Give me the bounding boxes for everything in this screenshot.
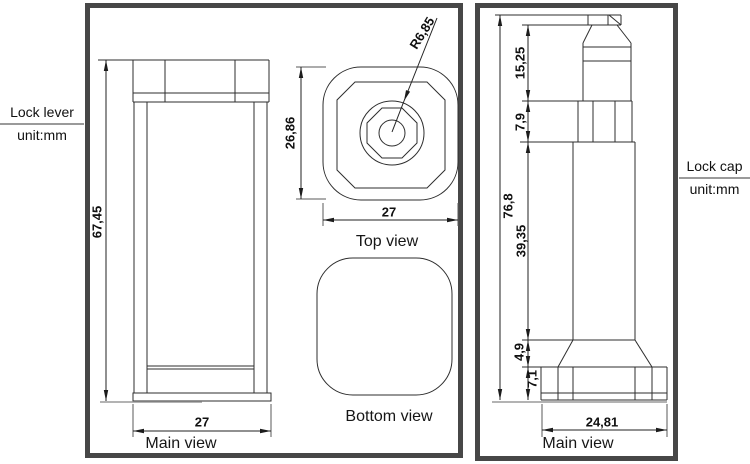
lever-bottom-view-title: Bottom view: [345, 408, 432, 426]
cap-base-dim-label: 7,1: [525, 370, 540, 388]
cap-main-view-title: Main view: [542, 435, 613, 453]
technical-drawing-page: Lock lever unit:mm Lock cap unit:mm: [0, 0, 750, 464]
lever-top-view-title: Top view: [356, 233, 418, 251]
cap-flare-dim-label: 4,9: [512, 343, 527, 361]
lever-main-view-title: Main view: [145, 435, 216, 453]
lever-width-dim-label: 27: [195, 415, 209, 430]
lock-lever-caption-unit: unit:mm: [0, 125, 84, 143]
lever-top-view-drawing: [323, 18, 458, 200]
cap-collar-dim-label: 7,9: [513, 113, 528, 131]
lock-cap-caption-unit: unit:mm: [679, 179, 750, 197]
lock-lever-caption: Lock lever unit:mm: [0, 104, 84, 143]
lever-bottom-view-drawing: [317, 258, 452, 395]
lock-cap-caption: Lock cap unit:mm: [679, 158, 750, 197]
lever-main-view-dimensions: [106, 60, 271, 437]
cap-top-section-dim-label: 15,25: [513, 47, 528, 80]
lever-top-view-dimensions: [296, 67, 458, 226]
cap-base-width-dim-label: 24,81: [586, 415, 619, 430]
cap-shaft-dim-label: 39,35: [514, 225, 529, 258]
lever-top-height-dim-label: 26,86: [283, 117, 298, 150]
lever-height-dim-label: 67,45: [90, 206, 105, 239]
lever-top-width-dim-label: 27: [382, 205, 396, 220]
cap-total-height-dim-label: 76,8: [501, 193, 516, 218]
lock-lever-caption-title: Lock lever: [0, 104, 84, 125]
lever-main-view-drawing: [98, 60, 271, 402]
lock-cap-caption-title: Lock cap: [679, 158, 750, 179]
drawing-canvas: [0, 0, 750, 464]
